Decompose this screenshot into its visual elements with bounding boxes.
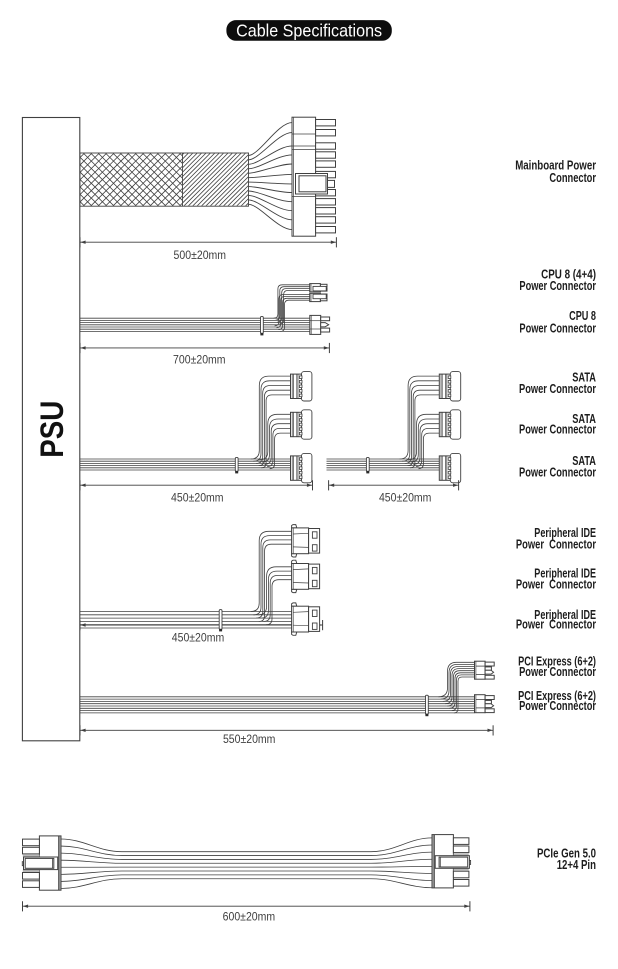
svg-text:Power Connector: Power Connector <box>516 578 596 592</box>
svg-text:Power Connector: Power Connector <box>519 466 596 480</box>
svg-text:Connector: Connector <box>549 171 596 185</box>
svg-text:450±20mm: 450±20mm <box>171 491 224 505</box>
svg-text:Power Connector: Power Connector <box>519 279 596 293</box>
svg-text:Power Connector: Power Connector <box>516 537 596 551</box>
svg-text:500±20mm: 500±20mm <box>174 248 227 262</box>
svg-text:Power Connector: Power Connector <box>516 618 596 632</box>
svg-text:Power Connector: Power Connector <box>519 422 596 436</box>
svg-text:600±20mm: 600±20mm <box>223 910 276 924</box>
svg-text:550±20mm: 550±20mm <box>223 732 276 746</box>
svg-text:700±20mm: 700±20mm <box>173 353 226 367</box>
svg-text:PSU: PSU <box>34 401 70 458</box>
svg-text:450±20mm: 450±20mm <box>172 631 225 645</box>
svg-text:450±20mm: 450±20mm <box>379 491 432 505</box>
svg-text:Power Connector: Power Connector <box>519 382 596 396</box>
svg-text:Power Connector: Power Connector <box>519 699 596 713</box>
svg-text:Power Connector: Power Connector <box>519 321 596 335</box>
svg-text:12+4 Pin: 12+4 Pin <box>557 858 596 872</box>
svg-text:Power Connector: Power Connector <box>519 665 596 679</box>
svg-text:Cable Specifications: Cable Specifications <box>236 21 382 41</box>
